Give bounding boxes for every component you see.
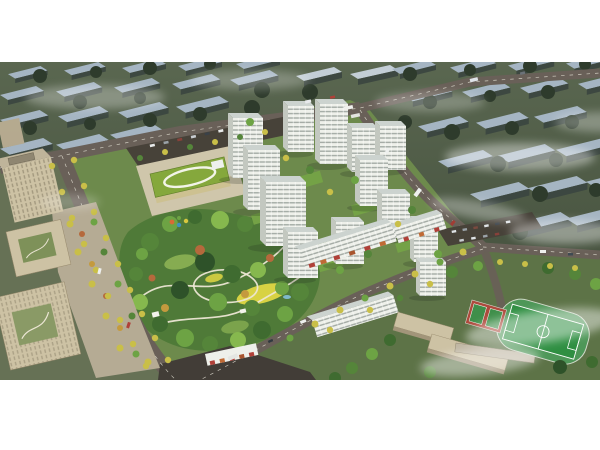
page: [0, 0, 600, 450]
rendering-image: [0, 62, 600, 380]
rendering-scene: [0, 62, 600, 380]
pond: [283, 295, 291, 299]
